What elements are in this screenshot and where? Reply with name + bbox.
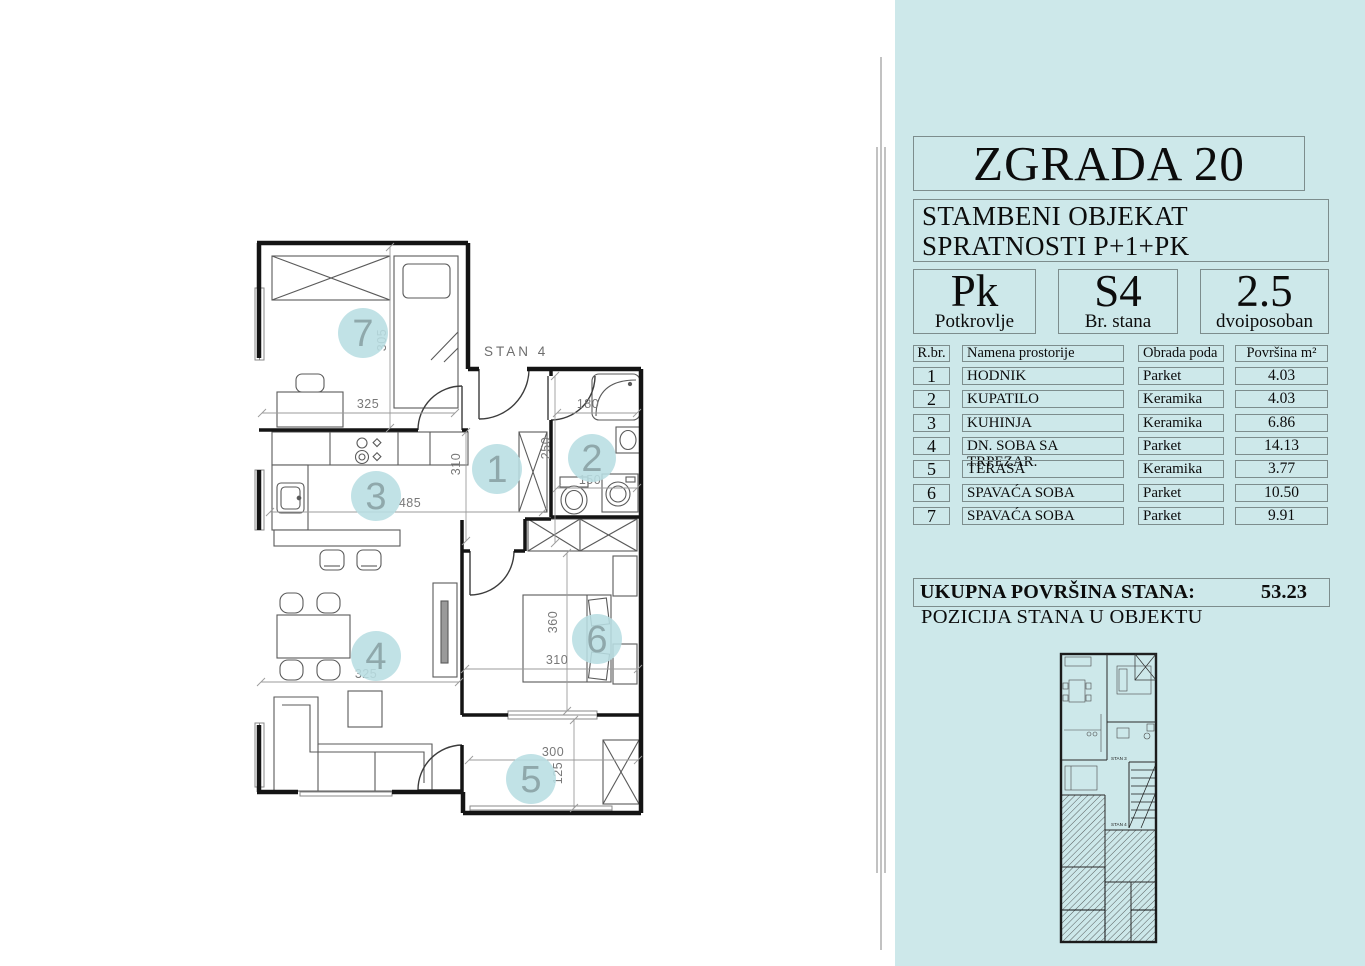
row-name: DN. SOBA SA TRPEZAR. <box>962 437 1124 455</box>
row-name: HODNIK <box>962 367 1124 385</box>
bar-stool <box>357 550 381 570</box>
dim-label: 310 <box>449 453 463 475</box>
svg-text:1: 1 <box>486 449 507 491</box>
row-area: 10.50 <box>1235 484 1328 502</box>
row-floor: Keramika <box>1138 390 1224 408</box>
door-arc <box>470 551 514 595</box>
bed-single <box>394 256 458 408</box>
dim-label: 250 <box>539 437 553 459</box>
wardrobe <box>528 519 580 551</box>
floor-info-box: Pk Potkrovlje <box>913 269 1036 334</box>
row-floor: Keramika <box>1138 414 1224 432</box>
building-subtitle: STAMBENI OBJEKAT SPRATNOSTI P+1+PK <box>913 199 1329 262</box>
dim-label: 485 <box>399 496 421 510</box>
room-marker-6: 6 <box>572 614 622 664</box>
total-area-box: UKUPNA POVRŠINA STANA: 53.23 <box>913 578 1330 607</box>
washing-machine <box>602 474 638 512</box>
unit-label-text: Br. stana <box>1085 312 1152 332</box>
mini-unit-label-lower: STAN 4 <box>1111 822 1127 827</box>
subtitle-line-2: SPRATNOSTI P+1+PK <box>922 231 1328 261</box>
tv-unit <box>433 583 457 677</box>
row-num: 4 <box>913 437 950 455</box>
row-floor: Parket <box>1138 437 1224 455</box>
chair <box>317 660 340 680</box>
room-marker-1: 1 <box>472 444 522 494</box>
row-area: 4.03 <box>1235 367 1328 385</box>
sliding-door-window <box>508 711 597 719</box>
coffee-table <box>348 691 382 727</box>
dim-label: 310 <box>546 653 568 667</box>
position-mini-plan: STAN 3 STAN 4 <box>1059 652 1159 944</box>
room-marker-3: 3 <box>351 471 401 521</box>
col-header-num: R.br. <box>913 345 950 362</box>
wardrobe <box>272 256 390 300</box>
row-name: KUPATILO <box>962 390 1124 408</box>
row-name: SPAVAĆA SOBA <box>962 484 1124 502</box>
svg-text:6: 6 <box>586 619 607 661</box>
unit-number-box: S4 Br. stana <box>1058 269 1178 334</box>
floor-code: Pk <box>951 270 999 312</box>
subtitle-line-1: STAMBENI OBJEKAT <box>922 201 1328 231</box>
kitchen-sink <box>277 483 304 513</box>
room-marker-7: 7 <box>338 308 388 358</box>
building-title-text: ZGRADA 20 <box>973 135 1245 192</box>
room-count-box: 2.5 dvoiposoban <box>1200 269 1329 334</box>
floor-plan: 325 305 180 250 150 310 485 325 360 310 … <box>0 0 895 966</box>
col-header-area: Površina m² <box>1235 345 1328 362</box>
desk <box>277 374 343 427</box>
row-name: SPAVAĆA SOBA <box>962 507 1124 525</box>
mini-unit-label-upper: STAN 3 <box>1111 756 1127 761</box>
floor-label: Potkrovlje <box>935 312 1014 332</box>
mini-storage-x <box>1135 654 1156 680</box>
row-floor: Parket <box>1138 507 1224 525</box>
row-num: 7 <box>913 507 950 525</box>
stairs <box>1129 764 1156 828</box>
row-area: 4.03 <box>1235 390 1328 408</box>
position-title: POZICIJA STANA U OBJEKTU <box>921 606 1203 629</box>
bathroom-sink <box>616 427 640 453</box>
row-floor: Parket <box>1138 367 1224 385</box>
svg-text:7: 7 <box>352 313 373 355</box>
svg-text:3: 3 <box>365 476 386 518</box>
chair <box>280 593 303 613</box>
row-num: 2 <box>913 390 950 408</box>
dim-label: 300 <box>542 745 564 759</box>
row-num: 3 <box>913 414 950 432</box>
kitchen-counter <box>272 432 468 465</box>
wardrobe <box>580 519 637 551</box>
row-area: 6.86 <box>1235 414 1328 432</box>
row-num: 6 <box>913 484 950 502</box>
bar-stool <box>320 550 344 570</box>
brochure-page: 325 305 180 250 150 310 485 325 360 310 … <box>0 0 1365 966</box>
unit-label: STAN 4 <box>484 344 548 359</box>
terrace-storage <box>603 740 639 804</box>
room-marker-4: 4 <box>351 631 401 681</box>
row-name: KUHINJA <box>962 414 1124 432</box>
dining-table <box>277 615 350 658</box>
svg-text:2: 2 <box>581 438 602 480</box>
row-floor: Parket <box>1138 484 1224 502</box>
chair <box>280 660 303 680</box>
nightstand <box>613 556 637 596</box>
total-area-label: UKUPNA POVRŠINA STANA: <box>914 581 1195 604</box>
section-lines <box>877 57 885 950</box>
room-marker-2: 2 <box>568 434 616 482</box>
highlighted-unit-hatch <box>1062 795 1156 941</box>
room-count-label: dvoiposoban <box>1216 312 1313 332</box>
row-num: 1 <box>913 367 950 385</box>
furniture <box>272 256 640 804</box>
info-panel: ZGRADA 20 STAMBENI OBJEKAT SPRATNOSTI P+… <box>895 0 1365 966</box>
dim-label: 180 <box>577 397 599 411</box>
row-floor: Keramika <box>1138 460 1224 478</box>
chair <box>317 593 340 613</box>
row-name: TERASA <box>962 460 1124 478</box>
room-count: 2.5 <box>1236 270 1292 312</box>
room-marker-5: 5 <box>506 754 556 804</box>
row-area: 9.91 <box>1235 507 1328 525</box>
dim-label: 325 <box>357 397 379 411</box>
row-area: 14.13 <box>1235 437 1328 455</box>
svg-text:5: 5 <box>520 759 541 801</box>
total-area-value: 53.23 <box>1261 581 1307 604</box>
building-title: ZGRADA 20 <box>913 136 1305 191</box>
col-header-floor: Obrada poda <box>1138 345 1224 362</box>
col-header-name: Namena prostorije <box>962 345 1124 362</box>
dim-label: 360 <box>546 611 560 633</box>
entrance-door-arc <box>479 369 529 419</box>
unit-code: S4 <box>1094 270 1142 312</box>
kitchen-island <box>274 530 400 546</box>
row-num: 5 <box>913 460 950 478</box>
row-area: 3.77 <box>1235 460 1328 478</box>
svg-text:4: 4 <box>365 636 386 678</box>
